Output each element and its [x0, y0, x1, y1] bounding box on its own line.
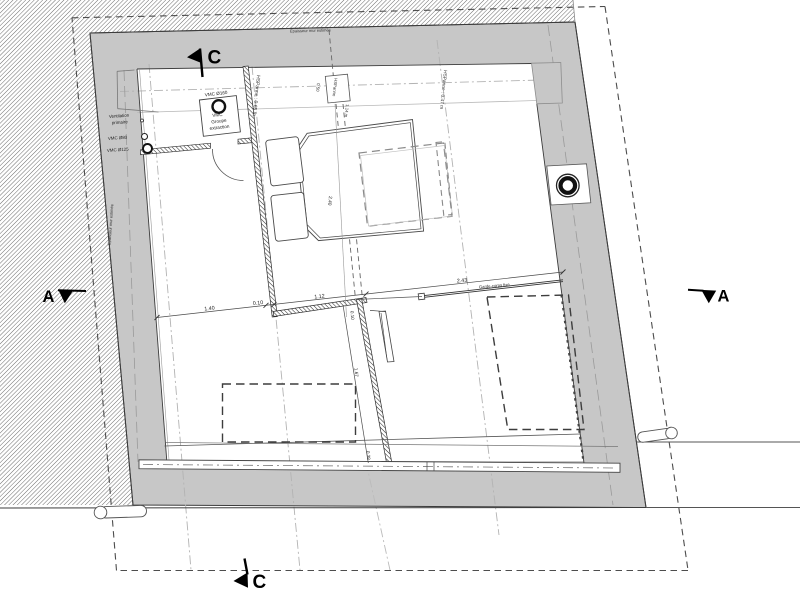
svg-text:1.67: 1.67	[354, 368, 360, 378]
svg-text:C: C	[208, 48, 222, 69]
svg-text:2.40: 2.40	[326, 196, 333, 206]
svg-text:A: A	[718, 288, 730, 306]
svg-text:0.50: 0.50	[315, 83, 321, 92]
svg-text:1.12: 1.12	[314, 294, 325, 301]
svg-text:1.40: 1.40	[204, 306, 215, 313]
svg-text:2.43: 2.43	[457, 278, 468, 285]
svg-text:0.10: 0.10	[253, 300, 264, 307]
svg-text:C: C	[253, 572, 267, 593]
svg-text:0.38: 0.38	[366, 451, 372, 461]
svg-text:0.10: 0.10	[350, 311, 356, 321]
svg-text:A: A	[43, 288, 55, 306]
